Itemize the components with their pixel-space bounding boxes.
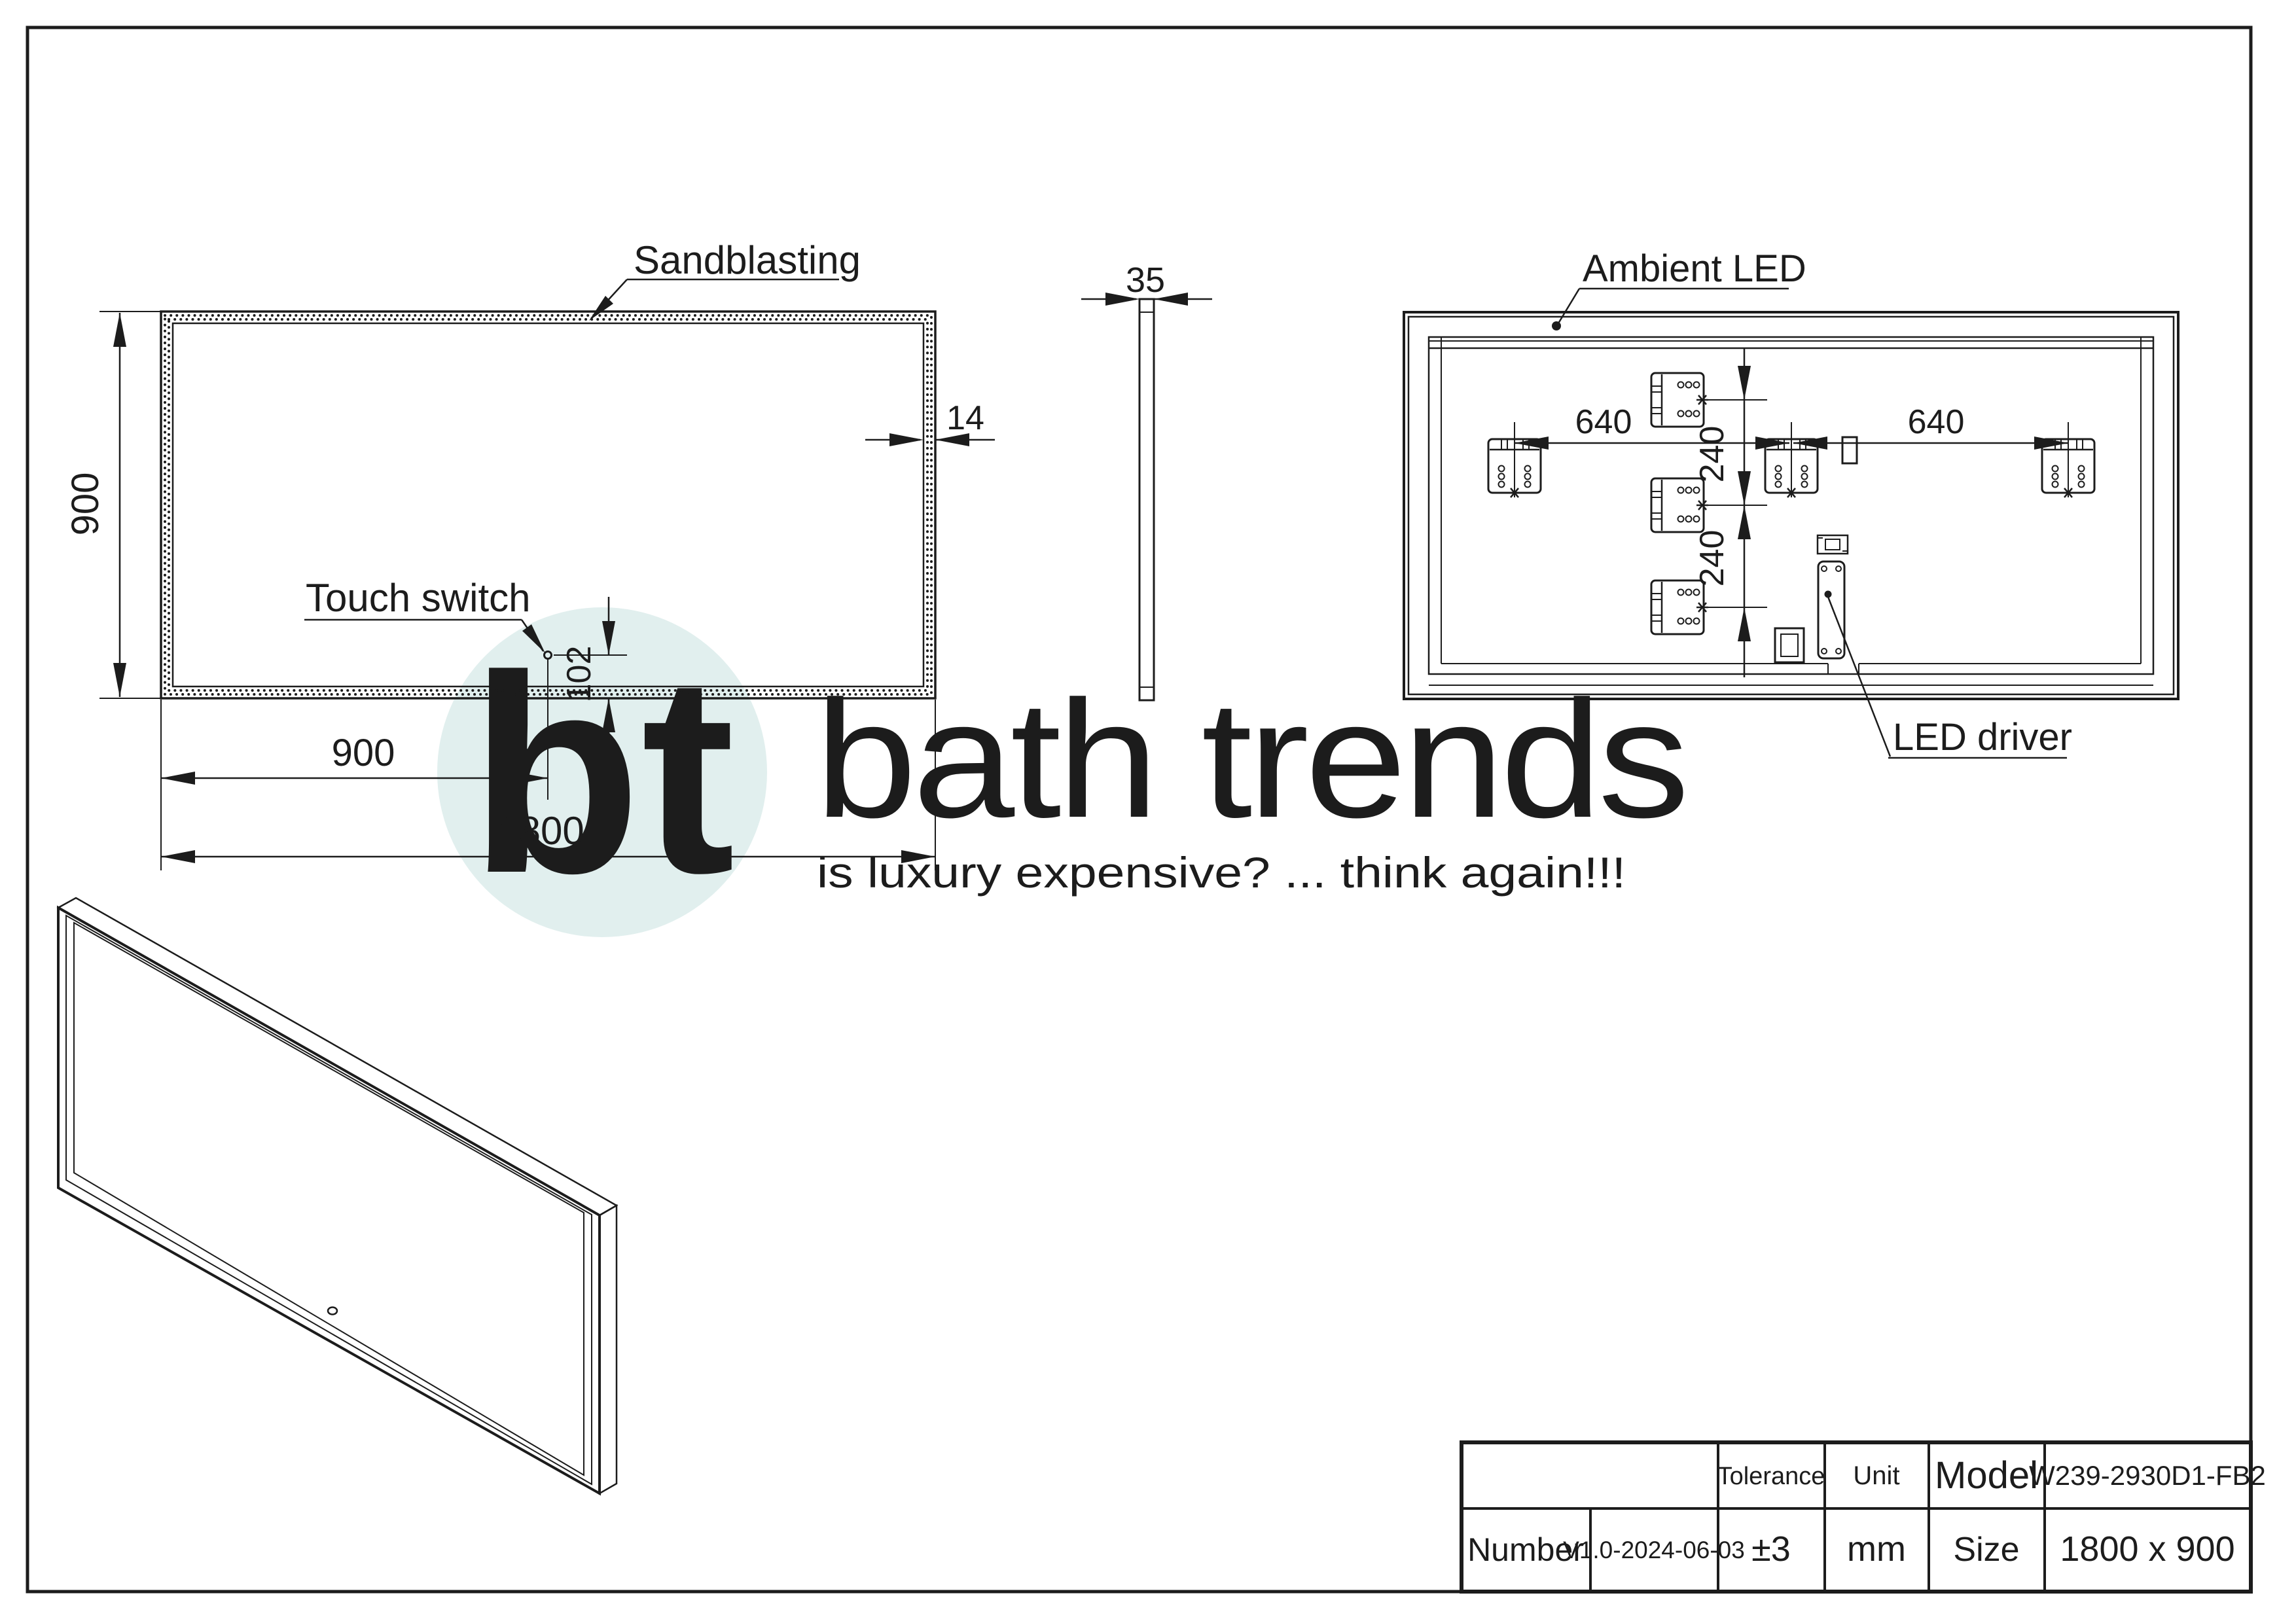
- driver-screw-hole: [1821, 566, 1827, 571]
- tolerance-value: ±3: [1751, 1529, 1791, 1569]
- dim-240-lower-label: 240: [1693, 530, 1731, 587]
- dim-240-upper-label: 240: [1693, 426, 1731, 483]
- size-value: 1800 x 900: [2060, 1529, 2234, 1569]
- frame-corner-right: [2141, 337, 2153, 348]
- driver-screw-hole: [1836, 649, 1841, 654]
- perspective-view: [58, 898, 617, 1493]
- bracket-center-bottom: [1651, 580, 1704, 634]
- connector-box-inner: [1825, 539, 1840, 550]
- arrow-left: [161, 772, 195, 785]
- dim-thickness-label: 35: [1126, 260, 1165, 300]
- arrow-up: [1738, 607, 1751, 641]
- led-driver-body: [1818, 562, 1844, 658]
- touch-switch-label: Touch switch: [306, 576, 530, 620]
- title-block: Tolerance Unit Model W239-2930D1-FB2 Num…: [1462, 1442, 2266, 1592]
- bracket-center-top: [1651, 373, 1704, 427]
- dim-640-left-label: 640: [1575, 403, 1632, 441]
- dim-switch-height-label: 102: [560, 646, 598, 703]
- watermark-logo-initials: bt: [469, 618, 735, 932]
- size-label: Size: [1953, 1531, 2019, 1569]
- model-label: Model: [1935, 1454, 2038, 1497]
- mirror-top-edge-face: [58, 898, 617, 1215]
- side-view: 35: [1081, 260, 1212, 700]
- dim-640-right-label: 640: [1908, 403, 1965, 441]
- led-driver-leader: [1828, 597, 1890, 757]
- driver-screw-hole: [1821, 649, 1827, 654]
- technical-drawing-canvas: bt bath trends is luxury expensive? ... …: [0, 0, 2296, 1623]
- arrow-left: [161, 850, 195, 863]
- dim-frame-label: 14: [946, 399, 984, 437]
- frame-corner-left: [1429, 337, 1441, 348]
- tolerance-label: Tolerance: [1717, 1463, 1825, 1490]
- drawing-sheet: bt bath trends is luxury expensive? ... …: [0, 0, 2296, 1623]
- watermark-tagline-text: is luxury expensive? ... think again!!!: [817, 848, 1626, 897]
- junction-box-inner: [1781, 634, 1798, 656]
- cable-clip: [1842, 437, 1857, 463]
- arrow-up: [1738, 505, 1751, 539]
- bracket-center-middle: [1651, 478, 1704, 532]
- arrow-down: [1738, 471, 1751, 505]
- model-value: W239-2930D1-FB2: [2029, 1460, 2266, 1491]
- mirror-face-inner-2: [74, 923, 584, 1475]
- back-outline: [1404, 312, 2178, 699]
- junction-box: [1775, 628, 1804, 662]
- back-outline-offset: [1408, 317, 2174, 694]
- arrow-down: [113, 663, 126, 697]
- touch-switch-dot-perspective: [328, 1308, 337, 1315]
- arrow-right: [889, 433, 924, 446]
- dim-width-label: 1800: [497, 809, 584, 853]
- led-driver-leader-dot: [1825, 591, 1832, 598]
- dim-height-label: 900: [64, 473, 107, 536]
- ambient-led-leader-dot: [1552, 321, 1561, 330]
- number-value: V1.0-2024-06-03: [1563, 1537, 1745, 1563]
- arrow-up: [113, 313, 126, 347]
- mirror-face: [58, 908, 600, 1493]
- arrow-down: [1738, 366, 1751, 400]
- ambient-led-leader: [1558, 289, 1579, 323]
- watermark: bt bath trends is luxury expensive? ... …: [437, 607, 1685, 937]
- driver-screw-hole: [1836, 566, 1841, 571]
- sandblasting-label: Sandblasting: [634, 238, 861, 282]
- unit-value: mm: [1847, 1529, 1906, 1569]
- back-inner-frame: [1429, 337, 2153, 674]
- led-driver-label: LED driver: [1893, 716, 2072, 758]
- unit-label: Unit: [1853, 1461, 1899, 1490]
- side-profile: [1139, 299, 1154, 700]
- mirror-face-inner-1: [66, 916, 592, 1484]
- dim-switch-x-label: 900: [332, 732, 395, 774]
- mirror-side-edge-face: [600, 1205, 617, 1493]
- ambient-led-label: Ambient LED: [1583, 247, 1806, 290]
